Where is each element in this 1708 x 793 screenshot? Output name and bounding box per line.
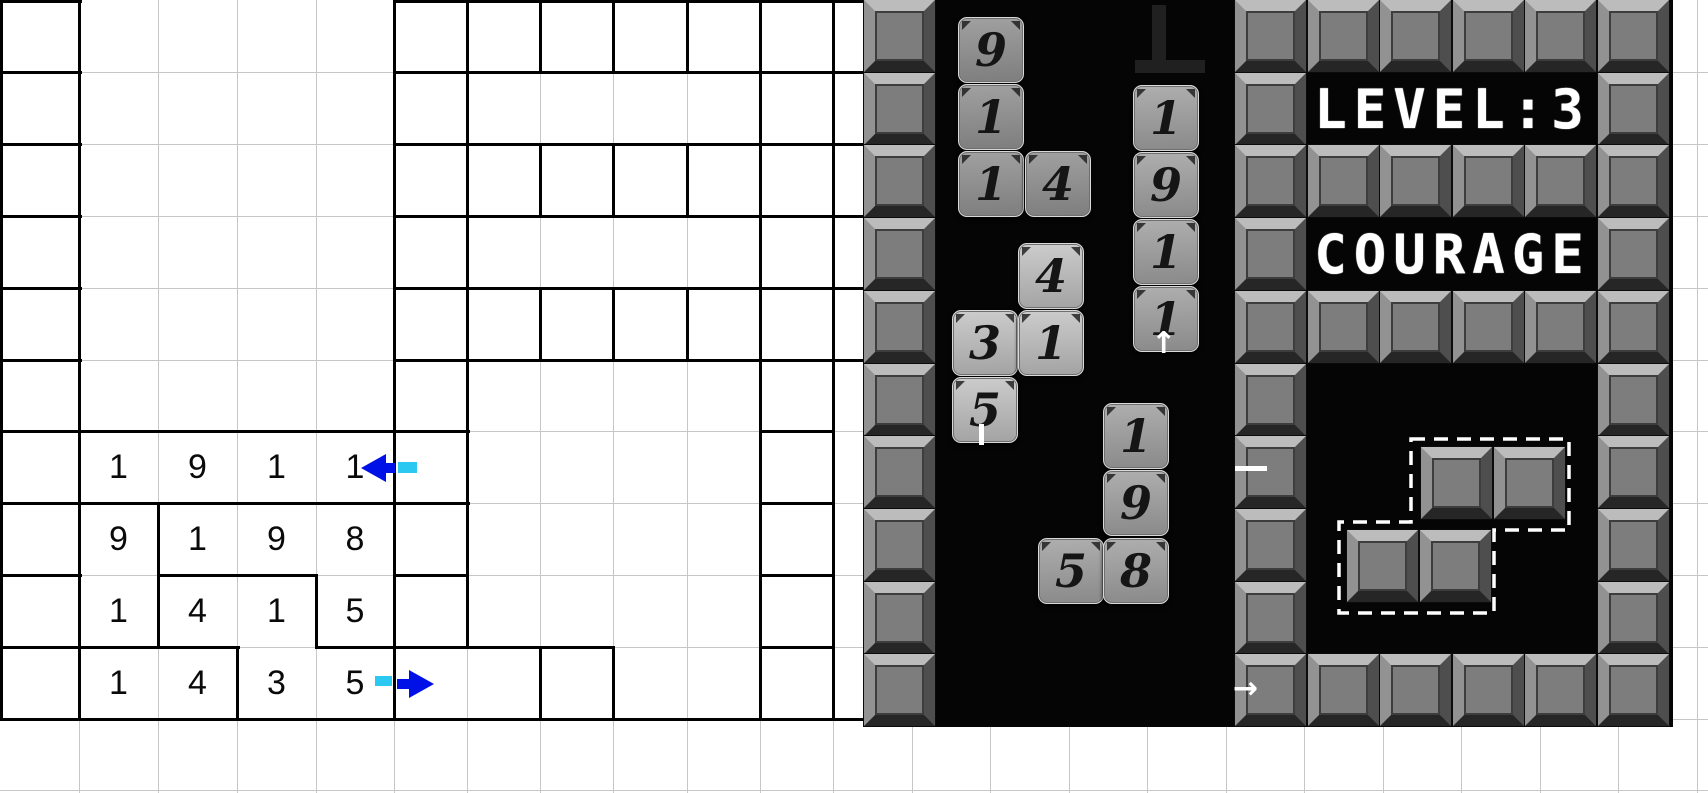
number-tile[interactable]: 1 [958,84,1024,150]
cursor-arrow-right-icon: → [1233,674,1258,704]
game-panel: LEVEL:3 COURAGE 9114431519111958 ↑ → [863,0,1673,727]
cross-mark-horizontal [1135,60,1205,73]
number-tile[interactable]: 3 [952,310,1018,376]
left-arrow-icon [361,454,386,482]
grid-number-cell[interactable]: 3 [237,647,316,719]
region-border-h [393,287,865,290]
region-border-h [0,574,82,577]
right-wall-block [1235,73,1306,145]
grid-number-cell[interactable]: 1 [158,503,237,575]
region-border-v [539,646,542,721]
region-border-h [0,71,82,74]
number-tile[interactable]: 5 [1038,538,1104,604]
region-border-h [0,287,82,290]
region-border-v [612,0,615,74]
right-wall-block [1380,145,1451,217]
grid-number-cell[interactable]: 4 [158,575,237,647]
grid-line-h [0,790,1708,791]
region-border-v [466,0,469,649]
number-tile[interactable]: 9 [1133,152,1199,218]
region-border-h [759,574,835,577]
grid-number-cell[interactable]: 4 [158,647,237,719]
number-tile[interactable]: 1 [1133,219,1199,285]
right-arrow-icon [409,670,434,698]
grid-number-cell[interactable]: 5 [316,575,394,647]
falling-piece-block [1420,530,1491,602]
grid-number-cell[interactable]: 1 [237,431,316,503]
left-wall-block [864,654,935,726]
number-tile[interactable]: 1 [958,151,1024,217]
region-border-v [539,287,542,362]
grid-number-cell[interactable]: 1 [79,575,158,647]
grid-number-cell[interactable]: 9 [158,431,237,503]
falling-piece-block [1347,530,1418,602]
region-border-h [0,215,82,218]
right-wall-block [1598,145,1669,217]
region-border-v [686,0,689,74]
level-display: LEVEL:3 [1307,74,1598,144]
region-border-h [393,0,865,3]
number-tile[interactable]: 1 [1018,310,1084,376]
right-wall-block [1598,509,1669,581]
right-wall-block [1308,654,1379,726]
falling-piece-block [1494,447,1565,519]
left-wall-block [864,436,935,508]
right-wall-block [1453,291,1524,363]
region-border-h [0,143,82,146]
right-wall-block [1380,291,1451,363]
grid-number-cell[interactable]: 1 [237,575,316,647]
right-wall-block [1598,73,1669,145]
right-wall-block [1235,582,1306,654]
right-wall-block [1525,291,1596,363]
right-wall-block [1525,0,1596,72]
right-wall-block [1308,0,1379,72]
right-wall-block [1235,436,1306,508]
right-wall-block [1525,654,1596,726]
region-border-h [0,0,82,3]
grid-number-cell[interactable]: 9 [237,503,316,575]
region-border-h [759,646,835,649]
right-wall-block [1235,145,1306,217]
right-wall-block [1308,291,1379,363]
number-tile[interactable]: 4 [1018,243,1084,309]
region-border-v [686,287,689,362]
right-wall-block [1598,218,1669,290]
right-wall-block [1598,436,1669,508]
number-tile[interactable]: 4 [1025,151,1091,217]
region-border-h [0,359,82,362]
right-wall-block [1598,291,1669,363]
grid-number-cell[interactable]: 9 [79,503,158,575]
right-wall-block [1308,145,1379,217]
right-wall-block [1235,509,1306,581]
grid-number-cell[interactable]: 1 [79,431,158,503]
right-wall-block [1598,654,1669,726]
left-wall-block [864,291,935,363]
right-wall-block [1235,0,1306,72]
number-tile[interactable]: 5 [952,377,1018,443]
right-wall-block [1453,145,1524,217]
puzzle-game-screenshot: 1911919814151435 LEVEL:3 COURAGE 9114431… [0,0,1708,793]
region-border-h [393,143,865,146]
left-wall-block [864,0,935,72]
cyan-dash [375,676,392,686]
number-tile[interactable]: 1 [1133,85,1199,151]
number-tile[interactable]: 9 [1103,470,1169,536]
right-wall-block [1235,291,1306,363]
left-wall-block [864,509,935,581]
right-wall-block [1598,582,1669,654]
number-tile[interactable]: 1 [1103,403,1169,469]
left-arrow-tail [385,463,395,473]
region-border-v [612,287,615,362]
right-wall-block [1235,364,1306,436]
left-wall-block [864,145,935,217]
number-tile[interactable]: 9 [958,17,1024,83]
right-wall-block [1453,0,1524,72]
right-wall-block [1598,364,1669,436]
right-wall-block [1453,654,1524,726]
grid-line-v [1697,0,1698,793]
region-border-v [539,0,542,74]
number-tile[interactable]: 8 [1103,538,1169,604]
region-border-h [393,359,865,362]
left-wall-block [864,582,935,654]
cyan-dash [398,462,417,473]
region-border-v [686,143,689,218]
right-wall-block [1235,218,1306,290]
left-wall-block [864,73,935,145]
cursor-dash-horizontal [1235,466,1267,471]
region-border-h [393,71,865,74]
region-border-h [759,502,835,505]
region-border-h [759,430,835,433]
grid-line-v [687,0,688,793]
right-wall-block [1598,0,1669,72]
grid-number-cell[interactable]: 8 [316,503,394,575]
region-border-v [612,646,615,721]
right-wall-block [1380,654,1451,726]
cursor-dash-vertical [979,424,984,445]
region-border-v [539,143,542,218]
region-border-h [393,574,469,577]
right-wall-block [1525,145,1596,217]
region-border-v [612,143,615,218]
grid-number-cell[interactable]: 1 [79,647,158,719]
motto-display: COURAGE [1307,219,1598,290]
region-border-h [393,215,865,218]
right-wall-block [1380,0,1451,72]
left-wall-block [864,218,935,290]
cursor-arrow-up-icon: ↑ [1151,329,1176,359]
left-wall-block [864,364,935,436]
falling-piece-block [1421,447,1492,519]
